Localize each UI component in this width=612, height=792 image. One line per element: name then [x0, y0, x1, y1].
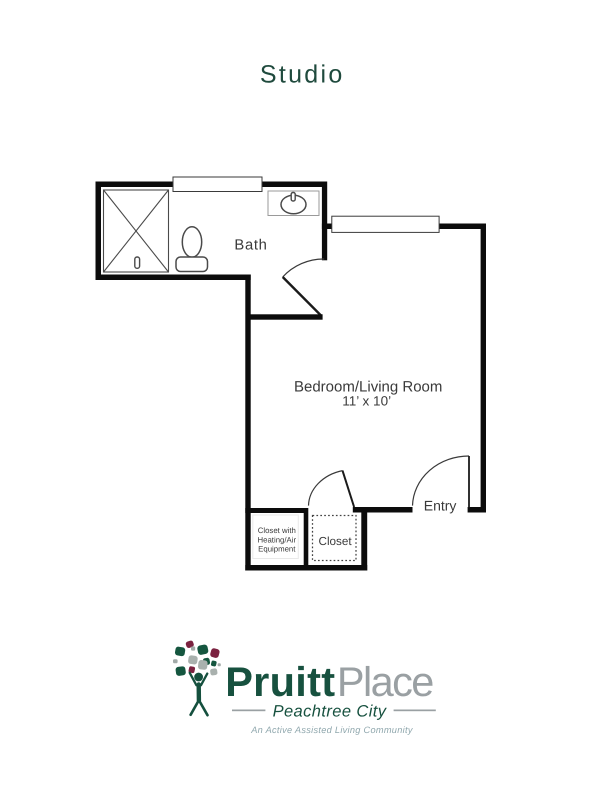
svg-text:Place: Place — [337, 658, 433, 705]
svg-text:11’ x 10’: 11’ x 10’ — [342, 393, 391, 408]
svg-text:Entry: Entry — [424, 497, 457, 513]
svg-text:Equipment: Equipment — [258, 544, 296, 553]
svg-text:Studio: Studio — [260, 60, 345, 88]
svg-text:Peachtree City: Peachtree City — [273, 703, 388, 721]
svg-text:Bath: Bath — [234, 238, 267, 254]
svg-text:An Active Assisted Living Comm: An Active Assisted Living Community — [250, 725, 414, 735]
svg-text:Pruitt: Pruitt — [225, 658, 335, 705]
svg-text:Heating/Air: Heating/Air — [258, 536, 297, 545]
svg-text:Closet: Closet — [319, 535, 353, 548]
svg-text:Closet with: Closet with — [258, 526, 296, 535]
